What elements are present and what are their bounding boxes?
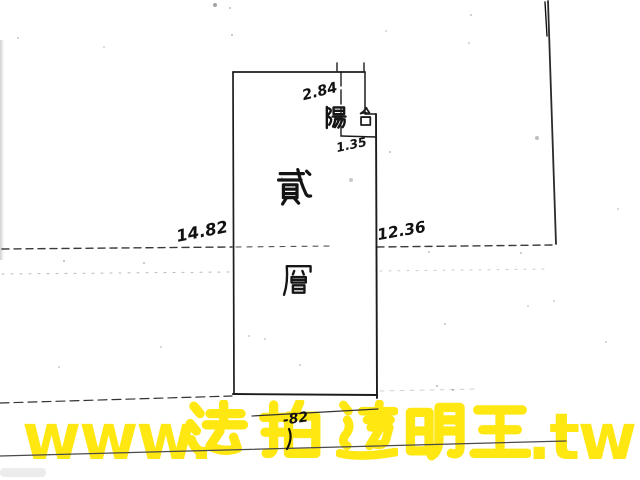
floor-plan-linework — [0, 0, 640, 480]
glyph-er-icon — [273, 166, 313, 210]
glyph-tai-icon — [354, 104, 376, 131]
page-border-right-line — [548, 1, 556, 244]
scanned-floor-plan-page: www.法拍透明王.tw www. 法拍透明王 .tw — [0, 0, 640, 480]
room-outline-right — [376, 114, 377, 398]
room-outline-left — [233, 72, 234, 394]
floor-label-char-top: 貳 — [273, 166, 313, 214]
floor-label-char-bottom: 層 — [282, 263, 316, 302]
dashed-dimension-line-right — [377, 245, 552, 247]
glyph-ceng-icon — [282, 263, 316, 298]
scan-rule-line — [0, 441, 566, 456]
glyph-yang-icon — [323, 104, 347, 131]
room-outline-bottom — [233, 394, 377, 395]
balcony-label: 陽台 — [323, 104, 376, 135]
dashed-dimension-line-left — [2, 247, 232, 249]
